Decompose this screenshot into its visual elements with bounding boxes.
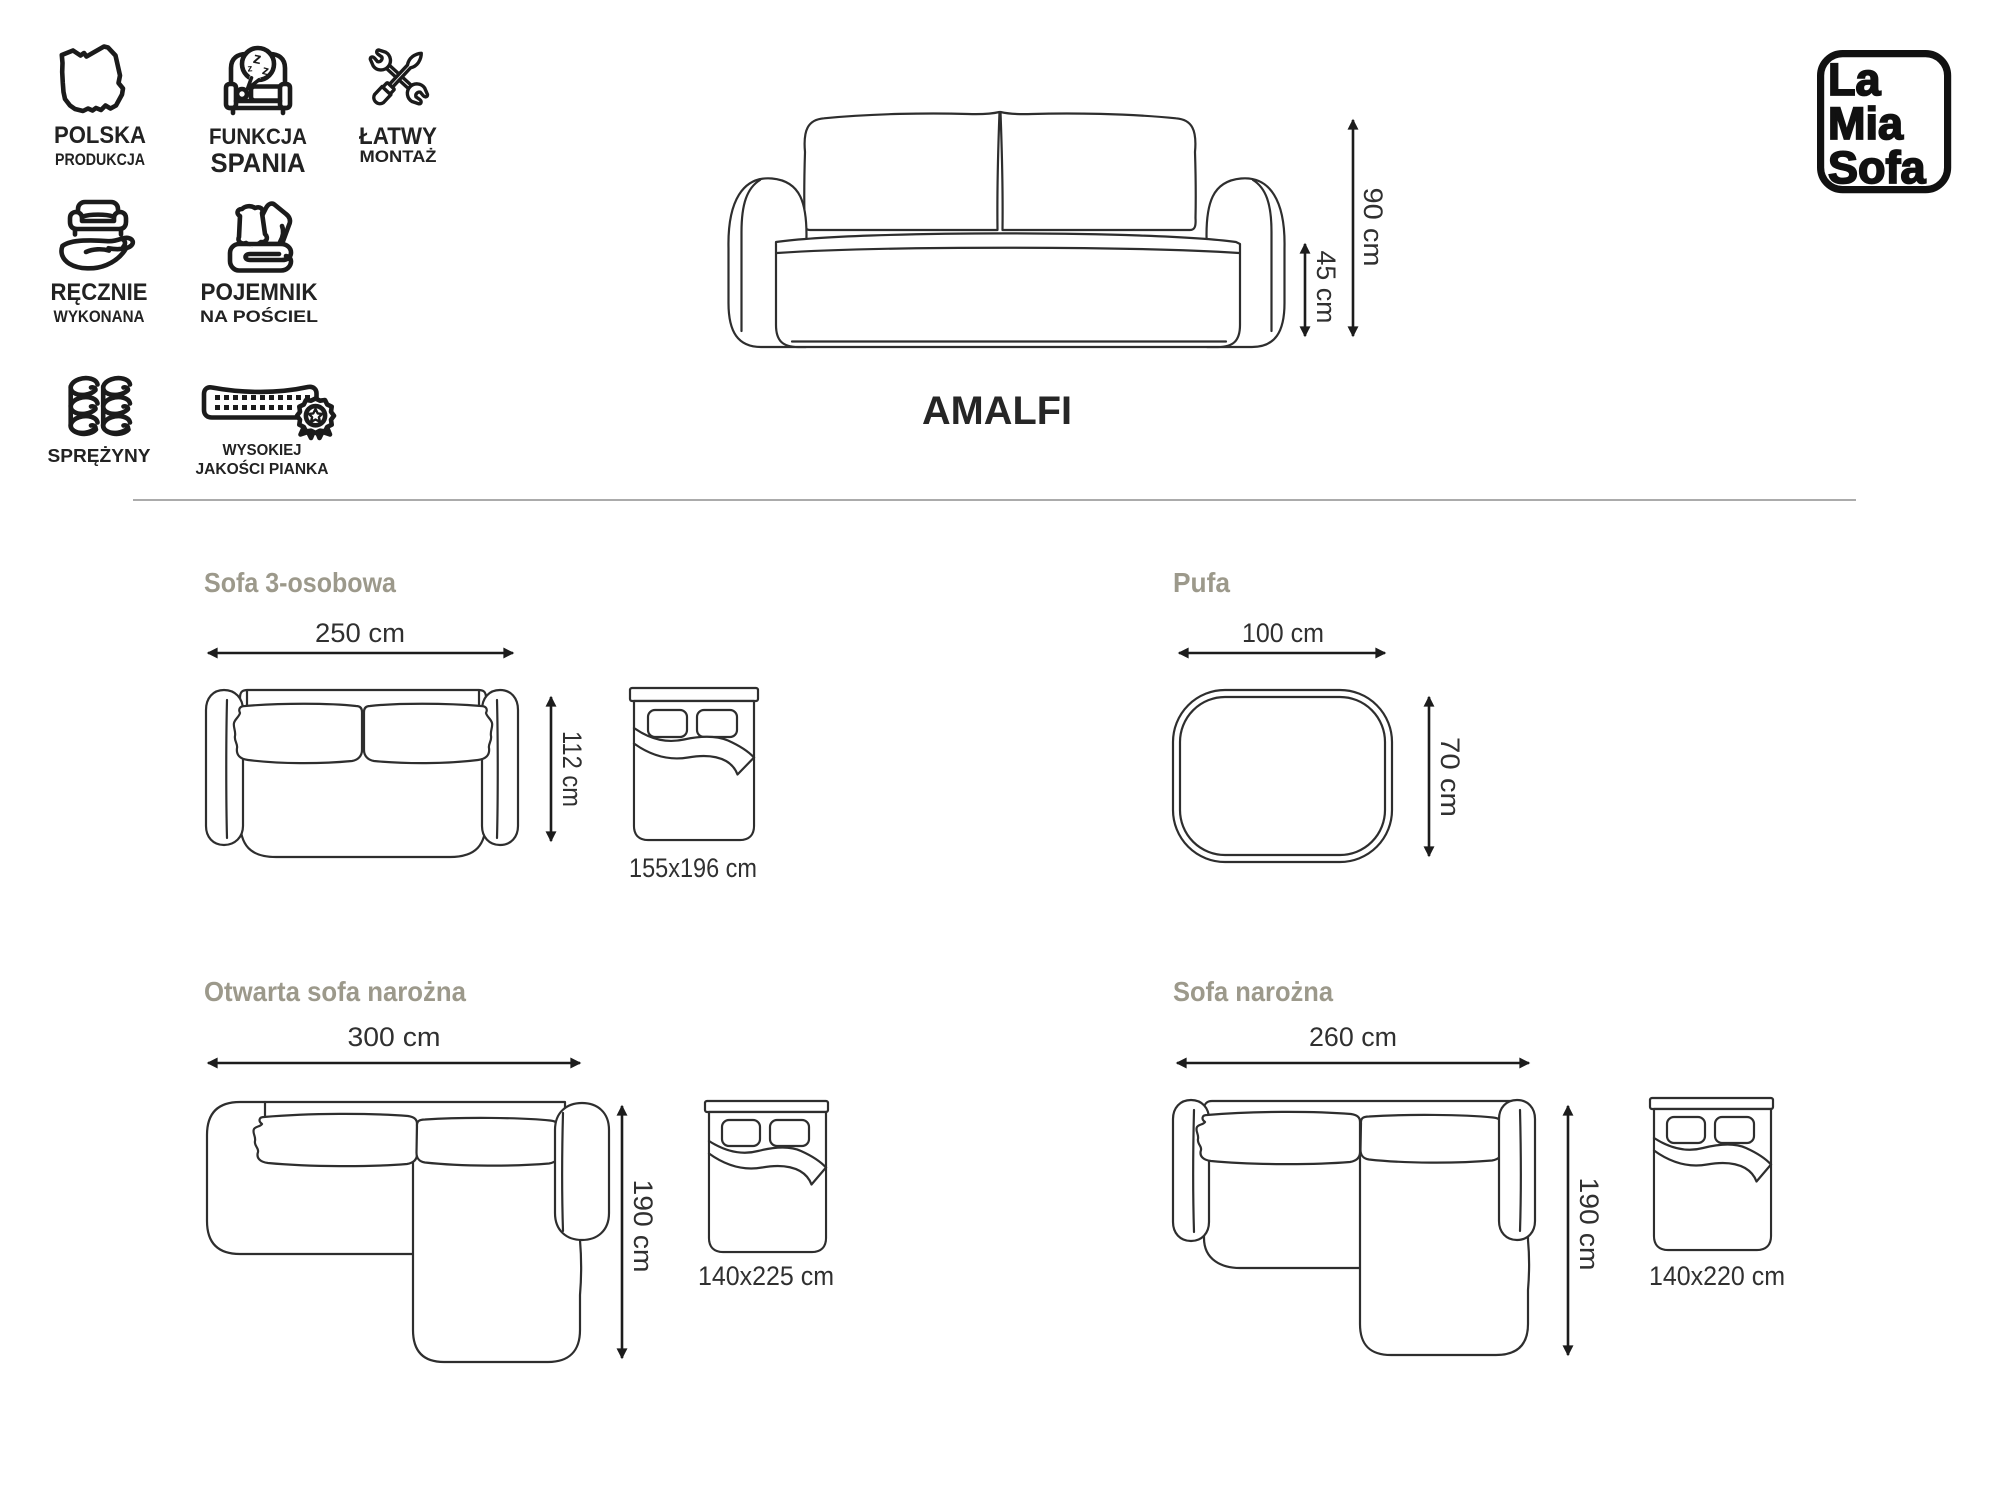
svg-text:Otwarta sofa narożna: Otwarta sofa narożna	[204, 976, 466, 1007]
svg-text:POJEMNIK: POJEMNIK	[201, 279, 319, 306]
svg-text:SPRĘŻYNY: SPRĘŻYNY	[48, 446, 151, 466]
svg-text:WYKONANA: WYKONANA	[54, 308, 145, 326]
svg-text:190 cm: 190 cm	[1574, 1178, 1604, 1271]
svg-text:90 cm: 90 cm	[1358, 188, 1388, 267]
svg-text:ŁATWY: ŁATWY	[359, 123, 437, 150]
svg-text:PRODUKCJA: PRODUKCJA	[55, 151, 145, 169]
svg-text:SPANIA: SPANIA	[211, 148, 306, 178]
svg-text:112 cm: 112 cm	[557, 731, 587, 807]
svg-text:140x220 cm: 140x220 cm	[1649, 1261, 1785, 1291]
svg-text:FUNKCJA: FUNKCJA	[209, 124, 307, 149]
svg-text:POLSKA: POLSKA	[54, 122, 146, 149]
svg-text:RĘCZNIE: RĘCZNIE	[51, 279, 148, 306]
svg-text:NA POŚCIEL: NA POŚCIEL	[200, 307, 318, 326]
svg-text:Sofa narożna: Sofa narożna	[1173, 976, 1333, 1007]
svg-text:Sofa: Sofa	[1828, 142, 1926, 193]
svg-text:JAKOŚCI PIANKA: JAKOŚCI PIANKA	[196, 459, 329, 478]
svg-text:300 cm: 300 cm	[348, 1022, 441, 1052]
svg-text:70 cm: 70 cm	[1435, 737, 1465, 817]
svg-text:140x225 cm: 140x225 cm	[698, 1261, 834, 1291]
svg-text:155x196 cm: 155x196 cm	[629, 853, 757, 883]
svg-text:250 cm: 250 cm	[315, 618, 405, 648]
svg-text:MONTAŻ: MONTAŻ	[360, 147, 437, 166]
svg-text:WYSOKIEJ: WYSOKIEJ	[223, 442, 302, 459]
svg-text:260 cm: 260 cm	[1309, 1022, 1397, 1052]
svg-text:100 cm: 100 cm	[1242, 618, 1324, 648]
svg-text:z: z	[247, 63, 253, 74]
svg-text:190 cm: 190 cm	[628, 1180, 658, 1273]
svg-text:Sofa 3-osobowa: Sofa 3-osobowa	[204, 567, 396, 598]
svg-text:AMALFI: AMALFI	[922, 389, 1072, 433]
svg-text:45 cm: 45 cm	[1311, 251, 1341, 324]
svg-text:Pufa: Pufa	[1173, 567, 1230, 598]
